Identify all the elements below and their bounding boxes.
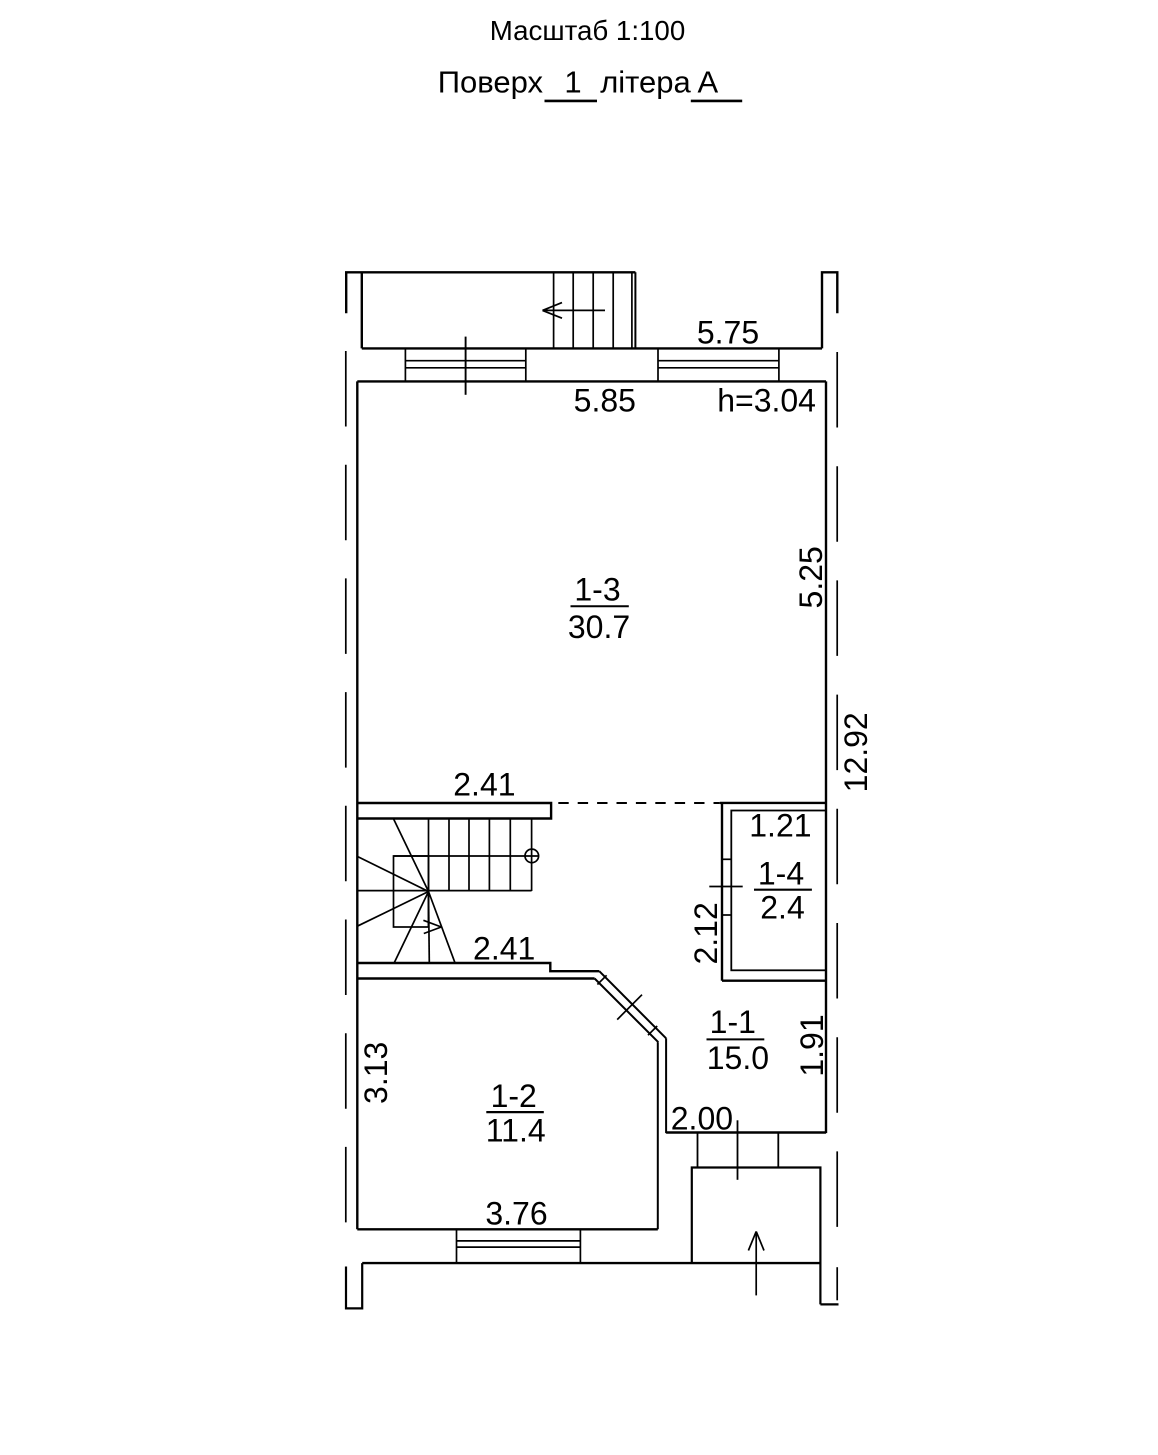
svg-text:1-2: 1-2 (491, 1078, 537, 1114)
svg-text:літера: літера (600, 65, 691, 100)
svg-text:2.41: 2.41 (473, 931, 535, 967)
svg-text:Масштаб 1:100: Масштаб 1:100 (490, 15, 685, 46)
svg-text:2.00: 2.00 (671, 1101, 733, 1137)
svg-text:2.4: 2.4 (760, 890, 804, 926)
svg-text:12.92: 12.92 (838, 712, 874, 792)
svg-text:А: А (698, 65, 719, 100)
svg-text:h=3.04: h=3.04 (717, 382, 816, 418)
svg-text:15.0: 15.0 (707, 1040, 769, 1076)
svg-text:2.41: 2.41 (453, 767, 515, 803)
svg-text:1-4: 1-4 (758, 856, 804, 892)
svg-text:1-3: 1-3 (574, 572, 620, 608)
svg-text:5.25: 5.25 (793, 546, 829, 608)
svg-text:11.4: 11.4 (486, 1113, 546, 1149)
svg-text:2.12: 2.12 (688, 902, 724, 964)
svg-text:3.13: 3.13 (358, 1042, 394, 1104)
svg-text:1-1: 1-1 (710, 1004, 756, 1040)
svg-text:1.91: 1.91 (794, 1014, 830, 1076)
svg-text:5.85: 5.85 (574, 382, 636, 418)
svg-text:30.7: 30.7 (568, 609, 630, 645)
svg-text:5.75: 5.75 (697, 314, 759, 350)
svg-text:3.76: 3.76 (485, 1196, 547, 1232)
svg-text:1: 1 (564, 65, 581, 100)
svg-text:1.21: 1.21 (749, 807, 811, 843)
svg-text:Поверх: Поверх (438, 65, 544, 100)
